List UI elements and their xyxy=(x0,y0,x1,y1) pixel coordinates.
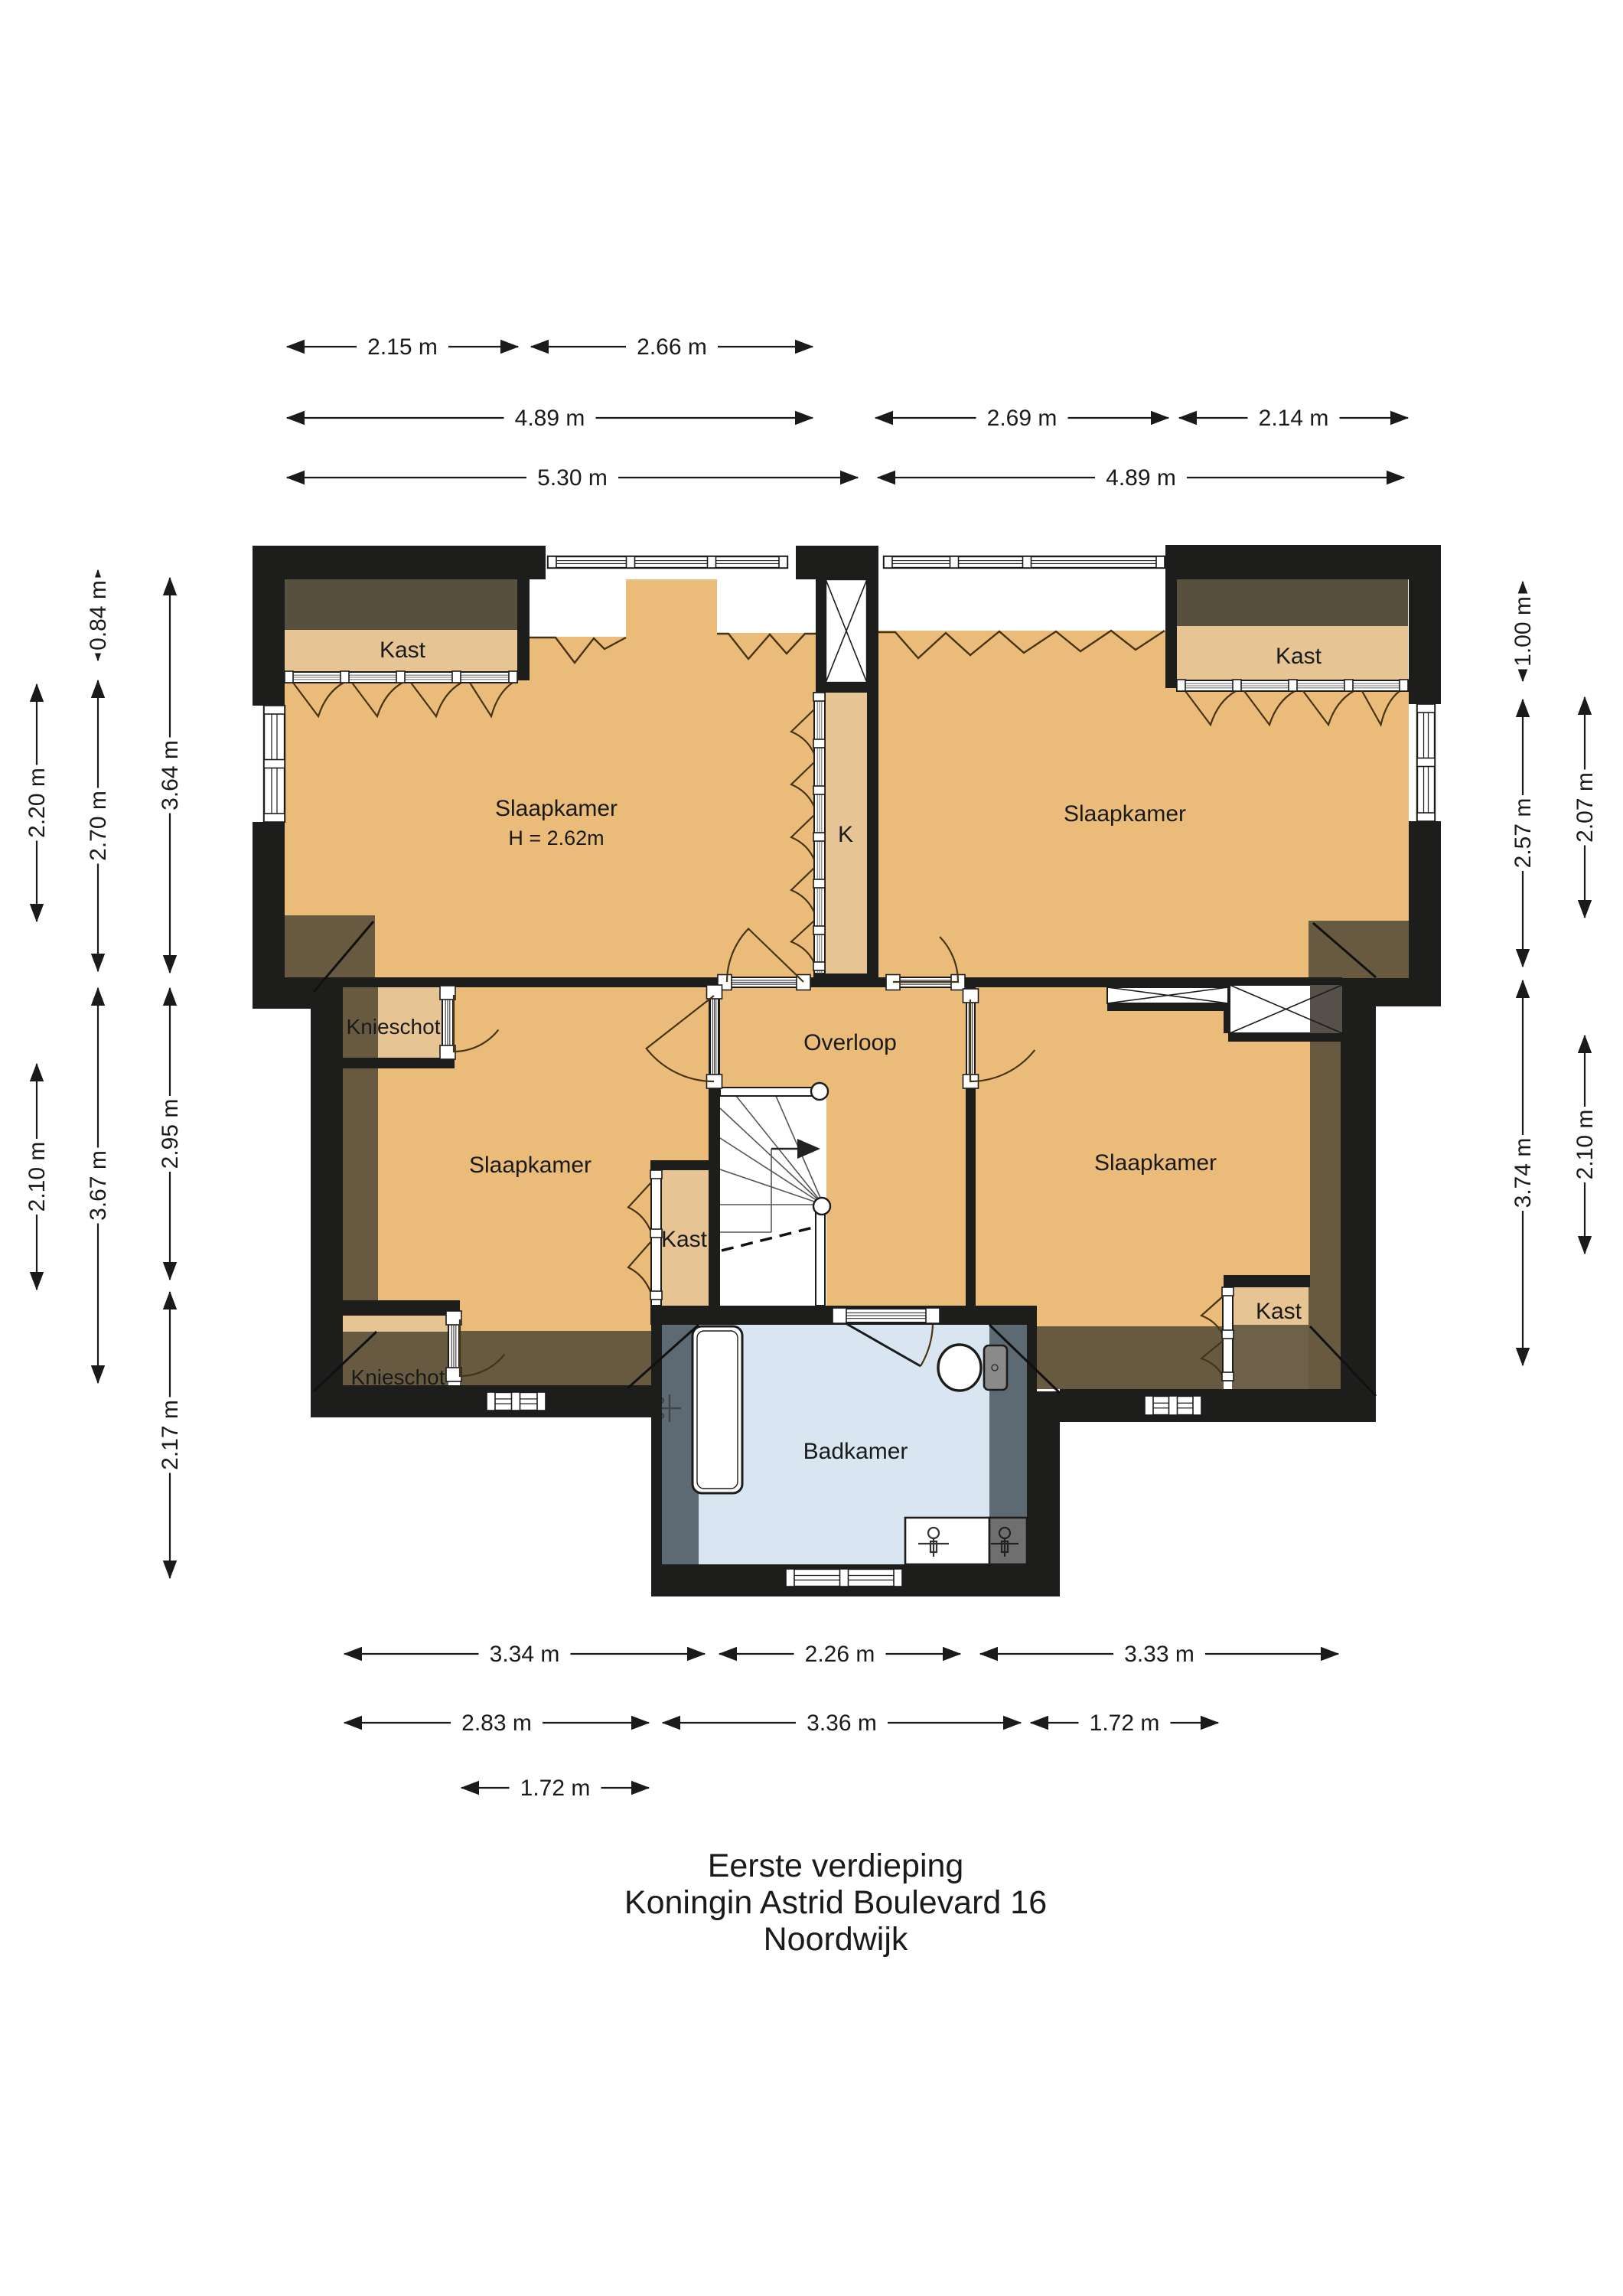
svg-text:Slaapkamer: Slaapkamer xyxy=(469,1153,592,1178)
svg-text:2.10 m: 2.10 m xyxy=(24,1142,50,1212)
svg-text:Overloop: Overloop xyxy=(803,1030,897,1055)
svg-text:2.07 m: 2.07 m xyxy=(1572,772,1598,843)
svg-text:0.84 m: 0.84 m xyxy=(86,580,111,651)
svg-text:1.00 m: 1.00 m xyxy=(1511,596,1536,667)
svg-text:Eerste verdieping: Eerste verdieping xyxy=(708,1848,964,1884)
svg-text:Kast: Kast xyxy=(1256,1299,1302,1324)
svg-text:2.10 m: 2.10 m xyxy=(1572,1110,1598,1180)
svg-text:2.20 m: 2.20 m xyxy=(24,768,50,838)
svg-text:3.67 m: 3.67 m xyxy=(86,1150,111,1221)
svg-text:Koningin Astrid Boulevard 16: Koningin Astrid Boulevard 16 xyxy=(624,1884,1047,1921)
svg-text:H = 2.62m: H = 2.62m xyxy=(508,827,604,850)
svg-text:2.26 m: 2.26 m xyxy=(805,1642,875,1667)
svg-text:5.30 m: 5.30 m xyxy=(537,465,608,491)
svg-text:2.66 m: 2.66 m xyxy=(637,334,707,360)
svg-text:2.17 m: 2.17 m xyxy=(158,1400,183,1470)
svg-text:1.72 m: 1.72 m xyxy=(520,1776,591,1801)
svg-text:Noordwijk: Noordwijk xyxy=(764,1921,908,1958)
svg-text:Kast: Kast xyxy=(661,1227,708,1252)
svg-text:Slaapkamer: Slaapkamer xyxy=(495,796,618,821)
svg-text:4.89 m: 4.89 m xyxy=(1106,465,1176,491)
svg-text:3.64 m: 3.64 m xyxy=(158,740,183,810)
svg-text:Kast: Kast xyxy=(380,638,426,663)
svg-text:Slaapkamer: Slaapkamer xyxy=(1064,801,1186,827)
svg-text:3.36 m: 3.36 m xyxy=(807,1711,877,1736)
svg-text:Badkamer: Badkamer xyxy=(803,1439,908,1464)
svg-text:4.89 m: 4.89 m xyxy=(515,406,585,431)
svg-text:2.95 m: 2.95 m xyxy=(158,1099,183,1169)
svg-text:2.70 m: 2.70 m xyxy=(86,791,111,861)
svg-text:2.57 m: 2.57 m xyxy=(1511,798,1536,869)
svg-text:Knieschot: Knieschot xyxy=(347,1015,441,1039)
svg-text:3.34 m: 3.34 m xyxy=(490,1642,560,1667)
svg-text:Slaapkamer: Slaapkamer xyxy=(1094,1150,1217,1176)
svg-text:2.83 m: 2.83 m xyxy=(461,1711,532,1736)
svg-text:3.74 m: 3.74 m xyxy=(1511,1138,1536,1208)
svg-text:2.14 m: 2.14 m xyxy=(1259,406,1329,431)
svg-text:2.69 m: 2.69 m xyxy=(987,406,1058,431)
svg-text:3.33 m: 3.33 m xyxy=(1124,1642,1194,1667)
svg-text:2.15 m: 2.15 m xyxy=(367,334,438,360)
svg-text:Kast: Kast xyxy=(1276,644,1322,669)
svg-text:1.72 m: 1.72 m xyxy=(1090,1711,1160,1736)
svg-text:Knieschot: Knieschot xyxy=(351,1365,445,1389)
svg-text:K: K xyxy=(838,822,853,847)
